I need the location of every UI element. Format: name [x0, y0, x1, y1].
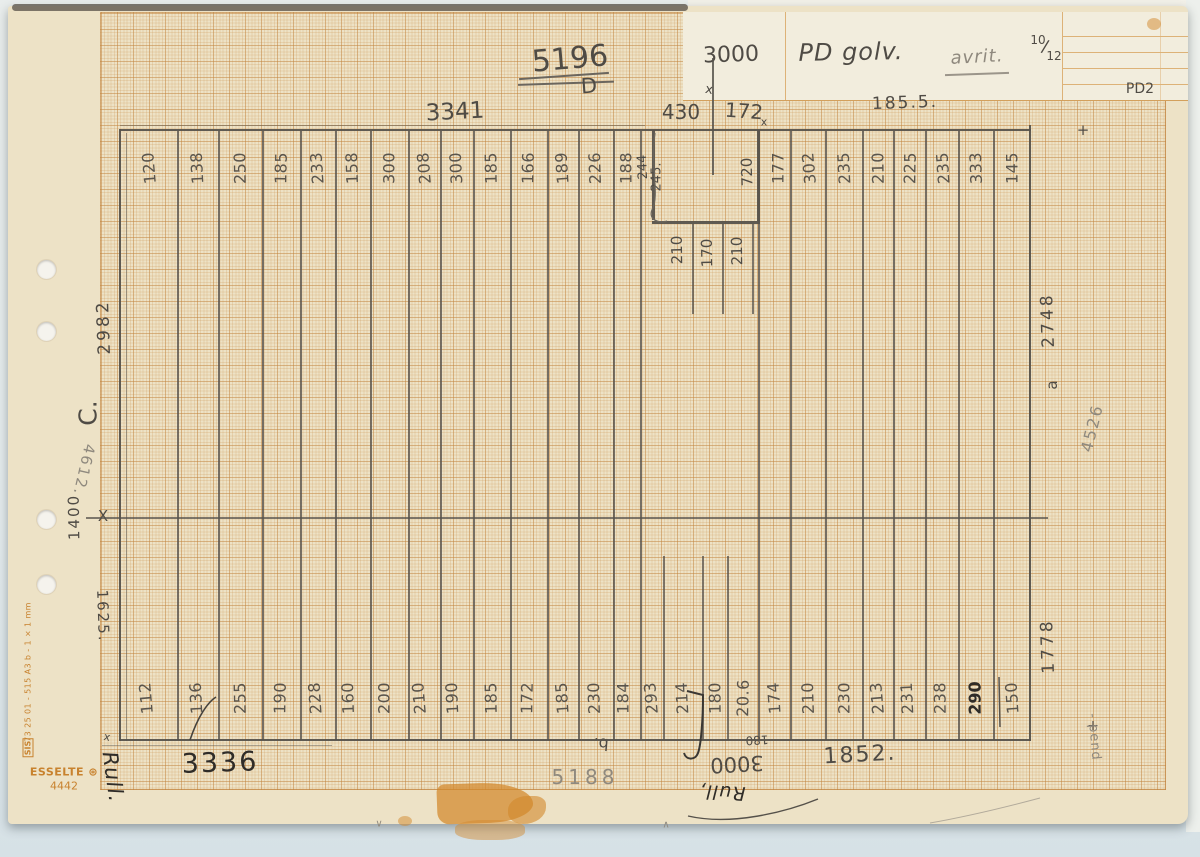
column-line — [218, 131, 220, 740]
notch-bottom-edge — [652, 221, 757, 224]
col-number-top: 235 — [834, 152, 855, 185]
col-number-bottom: 213 — [866, 681, 888, 715]
brand-reg-mark: ⊛ — [88, 766, 98, 779]
check-mark-down: ∨ — [375, 819, 382, 830]
col-number-bottom: 230 — [584, 682, 604, 715]
notch-below-number: 210 — [728, 237, 746, 266]
notch-side-number: 245. — [650, 163, 665, 192]
column-line-partial — [722, 224, 724, 314]
dim-left-mid: 1400 — [65, 494, 84, 540]
column-line — [825, 131, 827, 740]
col-number-top: 185 — [481, 152, 501, 184]
col-number-bottom: 293 — [640, 681, 662, 715]
col-number-bottom: 184 — [614, 682, 633, 714]
punch-hole — [37, 260, 56, 279]
column-line-partial — [692, 224, 694, 314]
punch-hole — [37, 510, 56, 529]
col-number-top: 189 — [551, 151, 572, 184]
col-number-bottom: 150 — [1001, 681, 1022, 714]
card-code: PD2 — [1126, 81, 1154, 97]
dim-notch-sub: x — [761, 116, 768, 129]
col-number-top: 208 — [413, 151, 435, 185]
dim-bottom-left: 3336 — [181, 746, 259, 780]
label-letter-c: C. — [74, 400, 103, 425]
col-number-bottom: 210 — [798, 682, 818, 715]
col-number-bottom: 112 — [135, 681, 157, 715]
dim-top-right: 185.5. — [872, 92, 939, 114]
column-line-partial — [752, 224, 754, 314]
column-line — [408, 131, 410, 740]
dim-left-top: 2982 — [93, 299, 115, 355]
card-divider — [785, 12, 786, 100]
col-number-top: 145 — [1003, 152, 1022, 184]
col-number-bottom: 185 — [481, 682, 501, 714]
column-line — [177, 131, 179, 740]
dim-right-suffix: a — [1043, 380, 1061, 389]
col-number-bottom: 172 — [517, 682, 537, 714]
dim-top-left: 3341 — [425, 97, 485, 126]
column-line — [473, 131, 475, 740]
plus-mark-top-right: + — [1077, 121, 1090, 139]
punch-hole — [37, 575, 56, 594]
stain — [398, 816, 412, 826]
label-letter-d: D — [580, 73, 598, 98]
col-number-top: 250 — [230, 152, 250, 184]
backing-paper-edge — [1186, 0, 1200, 832]
col-number-bottom: 255 — [230, 682, 250, 714]
col-number-top: 138 — [187, 152, 208, 185]
column-line — [613, 131, 615, 740]
sis-logo: SIS — [23, 739, 34, 758]
col-number-top: 226 — [585, 152, 605, 185]
card-rule — [1062, 52, 1188, 53]
col-number-top: 120 — [138, 151, 160, 185]
notch-below-number: 170 — [698, 239, 716, 268]
column-line — [790, 131, 792, 740]
col-number-bottom: 160 — [338, 682, 358, 715]
col-number-bottom: 190 — [442, 682, 463, 715]
paper-edge-shadow — [12, 4, 688, 11]
punch-hole — [37, 322, 56, 341]
col-number-top: 233 — [306, 151, 327, 184]
scanned-sheet: 3000 PD golv. avrit. 10 / 12 PD2 5196 D … — [0, 0, 1200, 857]
panel-right-edge — [1029, 125, 1031, 741]
stain — [455, 820, 525, 840]
column-line — [640, 131, 642, 740]
roll-note: Rull, — [698, 780, 746, 804]
measure-3000-bottom: 3000 — [710, 751, 765, 778]
col-number-bottom: 20.6 — [733, 679, 753, 717]
dim-bottom-right: 1852. — [823, 741, 897, 770]
col-number-bottom: 231 — [897, 682, 918, 715]
card-rule — [1062, 36, 1188, 37]
card-date-bottom: 12 — [1046, 49, 1061, 63]
column-line — [547, 131, 549, 740]
col-number-top: 235 — [932, 151, 953, 184]
col-number-top: 185 — [271, 152, 291, 184]
brand-esselte: ESSELTE ⊛ — [30, 766, 98, 779]
check-mark-up: ∧ — [662, 820, 669, 831]
col-number-top: 177 — [769, 152, 788, 184]
brand-model: 4442 — [50, 780, 78, 793]
col-number-top: 333 — [966, 152, 986, 185]
column-line-partial — [727, 556, 729, 740]
column-line — [993, 131, 995, 740]
card-rule — [1062, 68, 1188, 69]
column-line — [335, 131, 337, 740]
panel-top-edge-double — [120, 125, 645, 126]
col-number-bottom: 185 — [551, 681, 572, 714]
column-line — [370, 131, 372, 740]
col-number-top: 225 — [900, 152, 920, 184]
column-line — [925, 131, 927, 740]
sheet-spec-text: 73 25 01 - 515 A3 b - 1 × 1 mm — [24, 602, 33, 742]
col-number-bottom: 228 — [304, 681, 325, 714]
col-number-bottom: 238 — [930, 682, 950, 714]
column-line-partial — [702, 556, 704, 740]
dim-right-top: 2748 — [1037, 292, 1059, 348]
dim-left-bottom: 1625. — [93, 589, 113, 643]
x-mark-midline: X — [98, 507, 108, 525]
column-line — [958, 131, 960, 740]
column-line — [262, 131, 264, 740]
marker-line-3000 — [712, 58, 714, 175]
column-line — [862, 131, 864, 740]
panel-mid-line — [86, 517, 1048, 519]
notch-right-edge — [757, 130, 760, 224]
col-number-bottom-bold: 290 — [965, 681, 985, 715]
card-divider — [1062, 12, 1063, 100]
column-line — [893, 131, 895, 740]
col-number-top: 210 — [868, 152, 888, 184]
dim-right-bottom: 1778 — [1037, 618, 1059, 674]
col-number-bottom: 136 — [186, 682, 207, 715]
col-number-bottom: 214 — [672, 682, 693, 715]
col-number-bottom: 174 — [763, 681, 784, 714]
col-number-bottom: 210 — [408, 681, 430, 715]
column-line — [300, 131, 302, 740]
col-number-top: 158 — [342, 152, 362, 185]
column-line — [578, 131, 580, 740]
stain — [1147, 18, 1161, 30]
col-number-bottom: 230 — [835, 682, 854, 714]
dim-notch-left: 430 — [662, 100, 700, 124]
column-line — [440, 131, 442, 740]
col-number-top: 300 — [380, 152, 399, 184]
column-line-partial — [663, 556, 665, 740]
flag-b: b. — [593, 734, 610, 754]
panel-bottom-edge-double — [102, 745, 332, 746]
card-note: avrit. — [950, 45, 1004, 69]
panel-left-edge-double — [126, 133, 127, 741]
notch-inner-number: 720 — [738, 157, 757, 186]
col-number-bottom: 200 — [375, 682, 394, 714]
col-number-top: 302 — [798, 151, 820, 185]
column-line — [510, 131, 512, 740]
panel-left-edge — [119, 129, 121, 741]
dim-notch-right: 172 — [724, 98, 764, 125]
card-title: PD golv. — [798, 37, 904, 67]
col-number-top: 300 — [446, 152, 467, 185]
col-number-bottom: 190 — [270, 682, 290, 714]
col-number-top: 188 — [617, 152, 636, 184]
col-number-bottom: 180 — [705, 682, 725, 714]
col-number-top: 166 — [518, 152, 538, 184]
notch-below-number: 210 — [668, 236, 686, 265]
faint-bottom-number: 5188 — [552, 765, 619, 789]
